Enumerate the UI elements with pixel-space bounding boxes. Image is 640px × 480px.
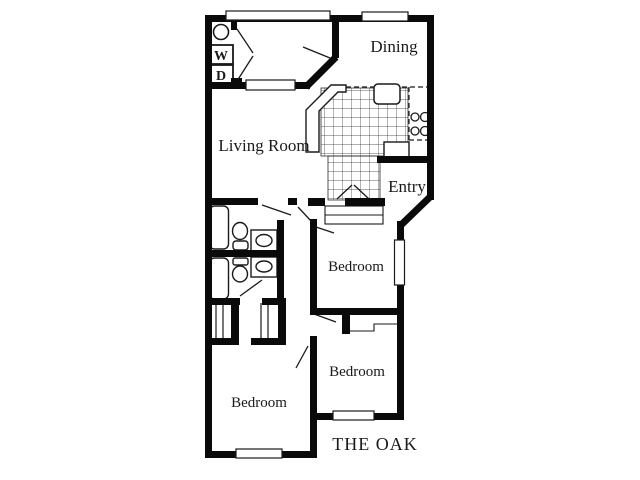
entry-label: Entry bbox=[388, 177, 426, 196]
bedroom-closet-shelf bbox=[350, 324, 397, 331]
washer-dryer-closet: W D bbox=[209, 25, 233, 85]
toilet-icon bbox=[233, 223, 248, 240]
dining-label: Dining bbox=[370, 37, 418, 56]
bathtub-icon bbox=[210, 258, 229, 299]
kitchen-sink-icon bbox=[374, 84, 400, 104]
closet-rod-icon bbox=[216, 303, 268, 338]
bathroom-lower bbox=[210, 257, 278, 299]
living-room-label: Living Room bbox=[218, 136, 309, 155]
bathroom-upper bbox=[210, 206, 278, 251]
bedroom-bottom-right-label: Bedroom bbox=[329, 364, 385, 380]
bathtub-icon bbox=[210, 206, 229, 249]
refrigerator-icon bbox=[384, 142, 409, 157]
floor-plan-page: W D bbox=[0, 0, 640, 480]
stove-burners-icon bbox=[411, 113, 430, 136]
washer-label: W bbox=[214, 49, 228, 64]
toilet-icon bbox=[233, 266, 248, 282]
linen-closet bbox=[325, 206, 383, 224]
bedroom-bottom-left-label: Bedroom bbox=[231, 395, 287, 411]
plan-title: THE OAK bbox=[332, 434, 418, 454]
floor-plan-drawing: W D bbox=[0, 0, 640, 480]
washer-circle-icon bbox=[214, 25, 229, 40]
dryer-label: D bbox=[216, 69, 226, 84]
bedroom-right-label: Bedroom bbox=[328, 259, 384, 275]
